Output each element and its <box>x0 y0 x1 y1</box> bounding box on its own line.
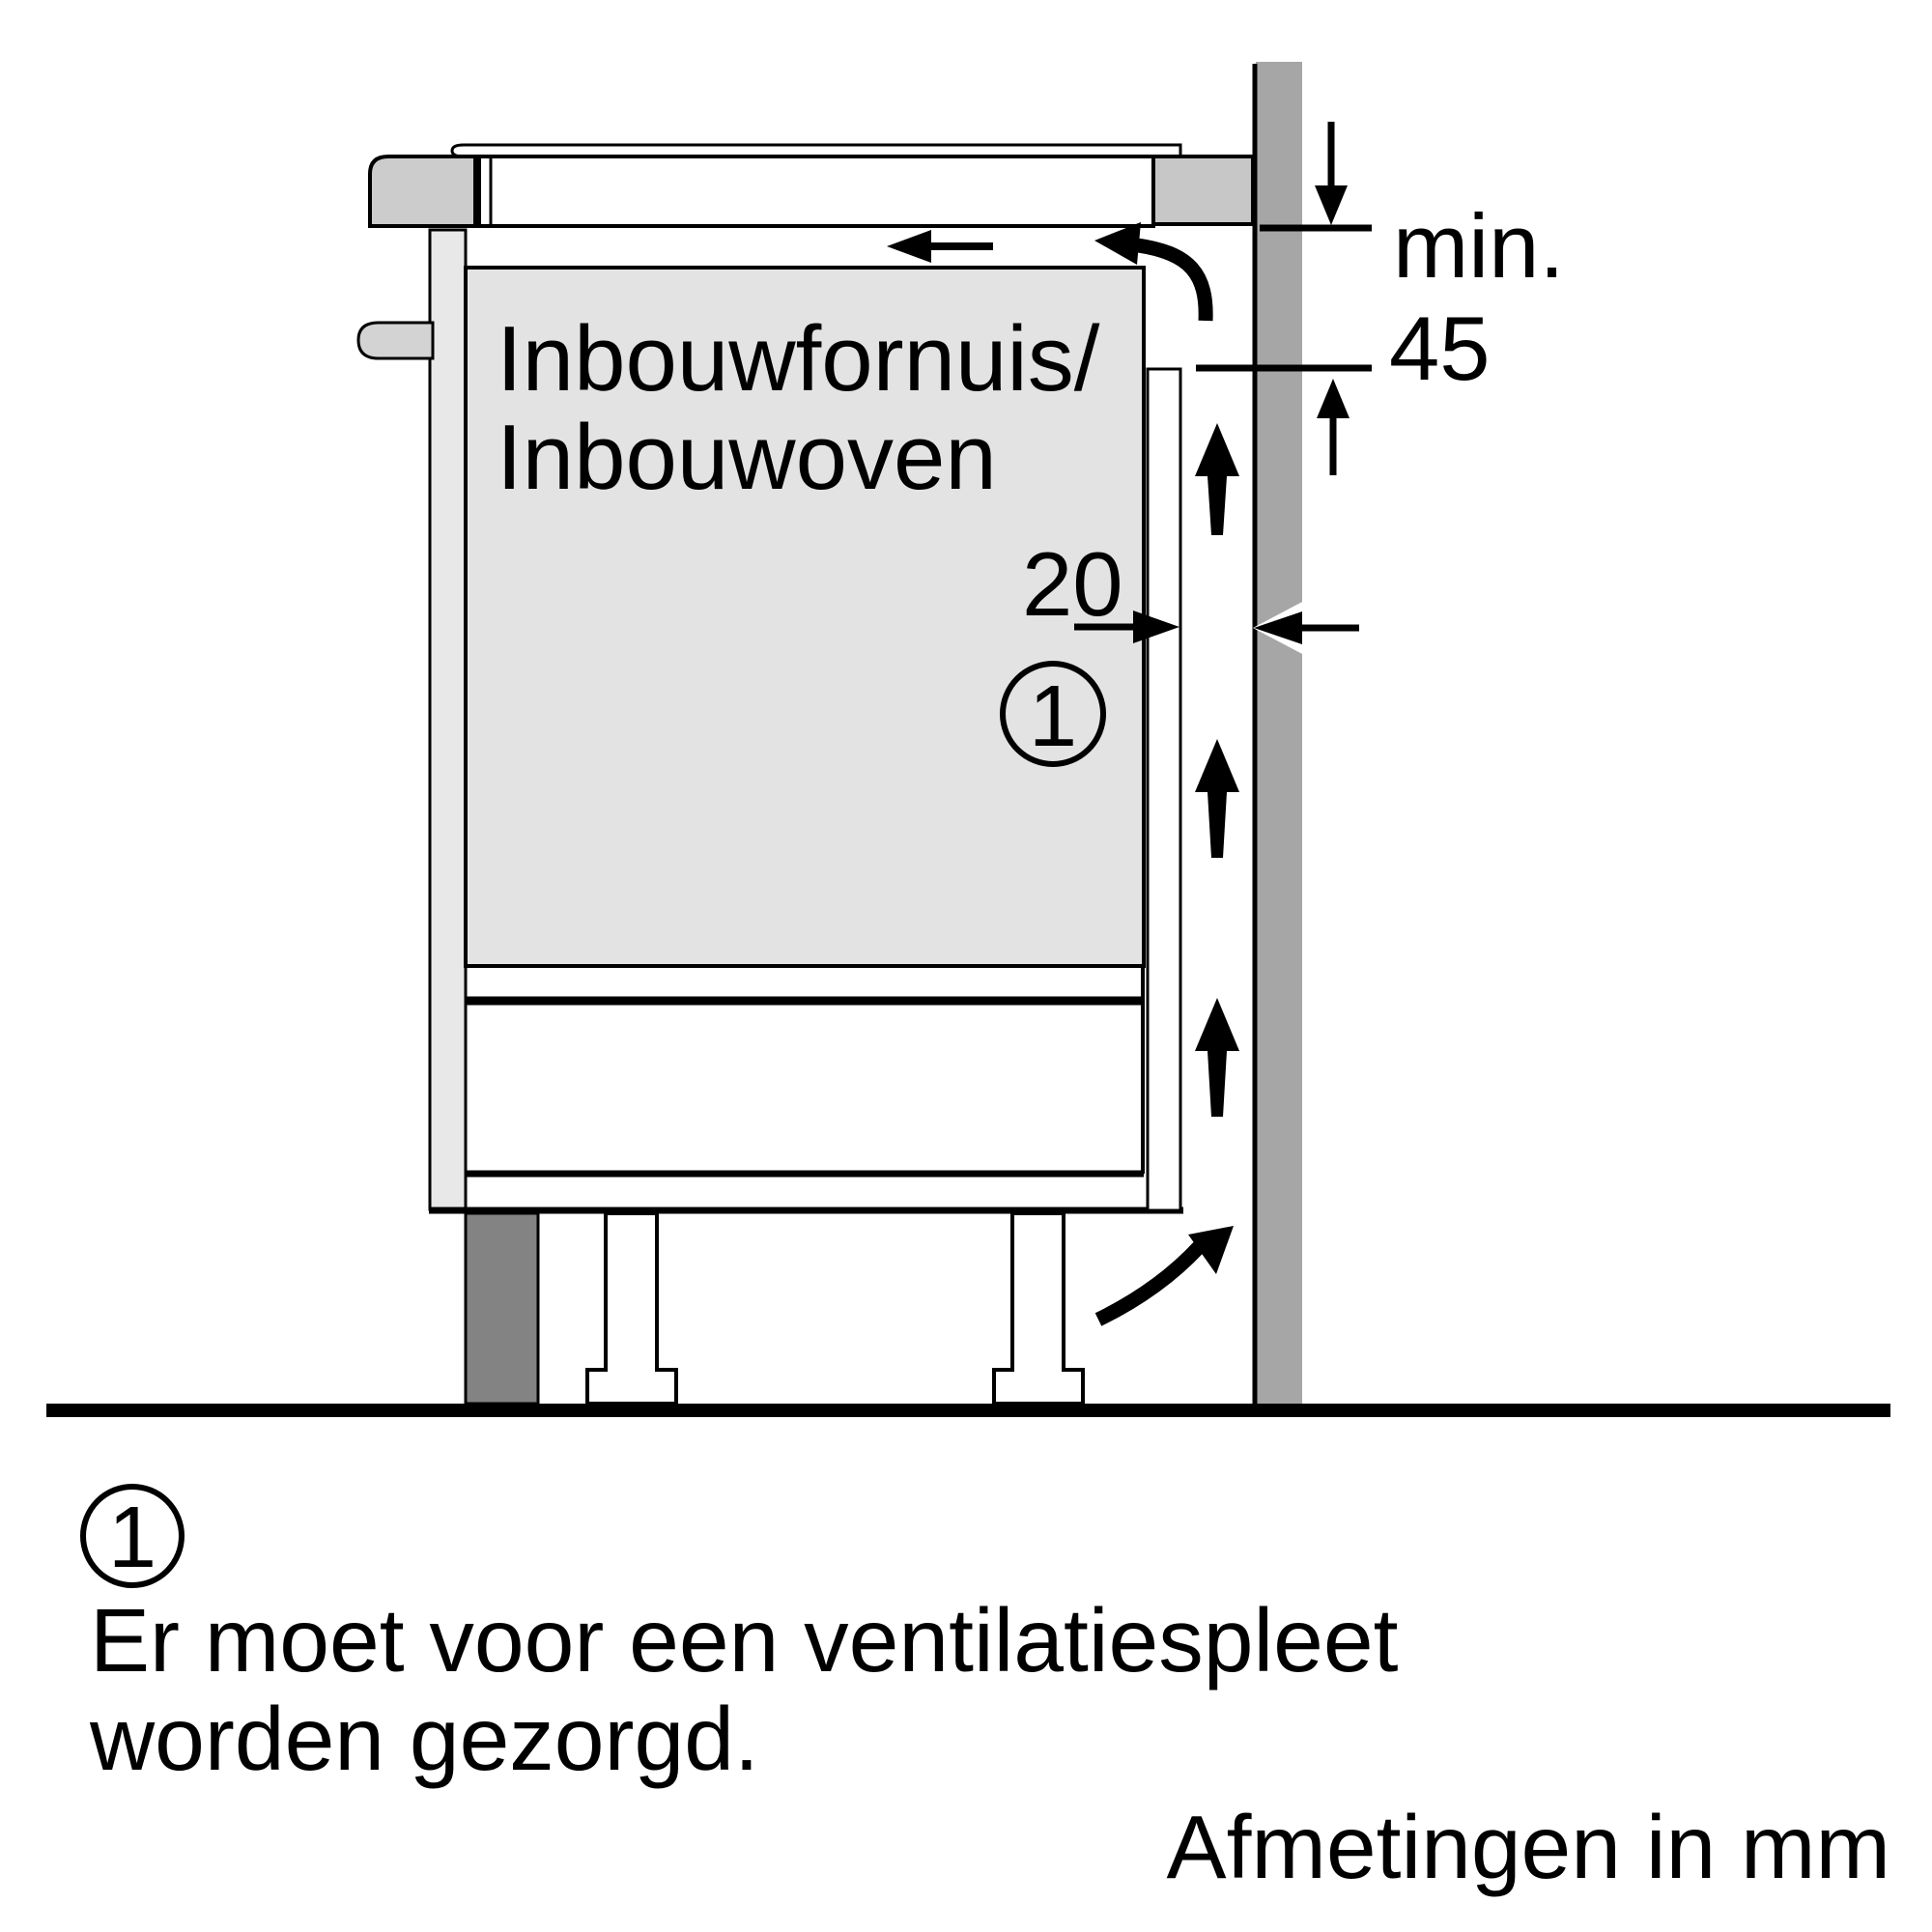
airflow-arrow-left-head <box>887 230 931 263</box>
cabinet-foot-front <box>587 1213 676 1404</box>
dim-gap-value: 20 <box>1022 533 1123 635</box>
airflow-arrow-up-icon-3 <box>1195 998 1239 1117</box>
cabinet-rear-panel <box>1148 369 1180 1210</box>
airflow-curve-bottom-icon <box>1098 1226 1234 1320</box>
dim-45-arrow-up-icon <box>1317 379 1350 418</box>
wall-body <box>1256 62 1302 1405</box>
cabinet-side-panel <box>430 230 466 1209</box>
legend-text-line2: worden gezorgd. <box>89 1689 759 1789</box>
cabinet-label-line2: Inbouwoven <box>497 406 997 509</box>
installation-diagram-page: min. 45 20 1 Inbouwfornuis/ Inbouwoven 1… <box>0 0 1932 1932</box>
installation-diagram: min. 45 20 1 Inbouwfornuis/ Inbouwoven 1… <box>0 0 1932 1932</box>
legend: 1 Er moet voor een ventilatiespleet word… <box>83 1487 1399 1789</box>
control-knob <box>358 323 433 358</box>
hob-body-block <box>1153 156 1253 224</box>
worktop <box>370 145 1253 226</box>
airflow-arrow-up-icon-2 <box>1195 739 1239 858</box>
airflow-curve-bottom-path <box>1098 1247 1199 1320</box>
airflow-arrow-left-icon <box>887 230 993 263</box>
cabinet-foot-rear <box>994 1213 1083 1404</box>
plinth-panel <box>466 1213 538 1404</box>
legend-text-line1: Er moet voor een ventilatiespleet <box>90 1590 1399 1690</box>
dim-45-arrow-down-icon <box>1315 185 1348 225</box>
floor-line <box>46 1404 1890 1417</box>
airflow-curve-top-head <box>1094 222 1141 265</box>
dim-min-value: 45 <box>1389 298 1491 399</box>
callout-number: 1 <box>1029 668 1077 765</box>
airflow-curve-top-path <box>1138 245 1206 321</box>
wall <box>1253 62 1304 1405</box>
countertop <box>479 156 1153 226</box>
cabinet-label-line1: Inbouwfornuis/ <box>497 307 1100 411</box>
airflow-arrow-up-icon-1 <box>1195 423 1239 535</box>
units-note: Afmetingen in mm <box>1167 1797 1890 1897</box>
legend-number: 1 <box>108 1490 156 1586</box>
hob-front-profile <box>370 156 475 226</box>
dim-min-label: min. <box>1393 195 1565 297</box>
dimension-gap-20: 20 <box>1022 533 1359 644</box>
